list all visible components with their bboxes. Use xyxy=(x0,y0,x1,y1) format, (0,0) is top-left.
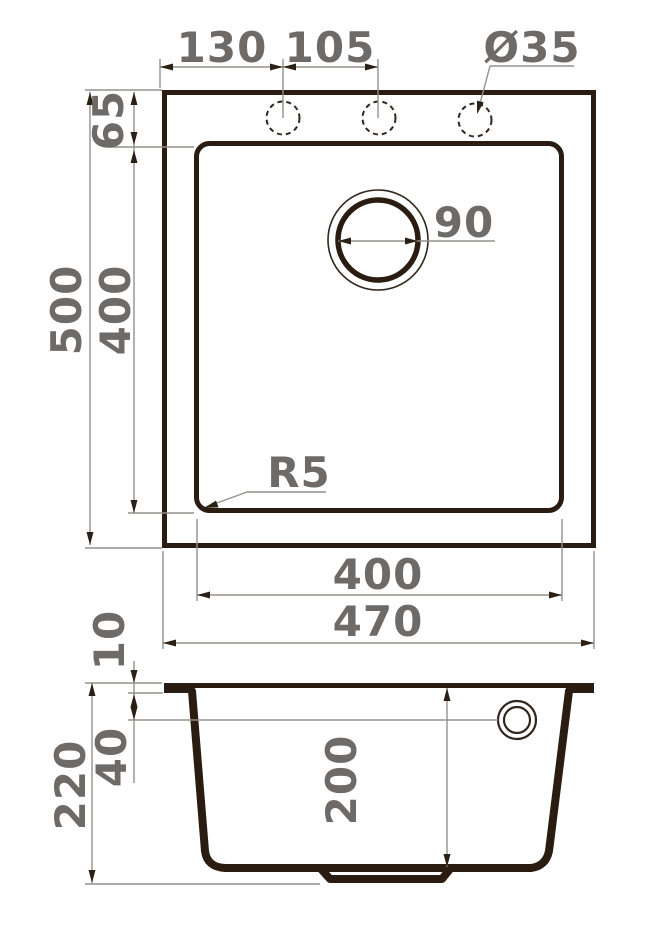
dim-label-105: 105 xyxy=(285,23,376,72)
dim-label-400-vertical: 400 xyxy=(91,265,140,356)
dim-label-10: 10 xyxy=(85,610,134,670)
sink-outer-outline xyxy=(165,93,594,546)
section-view: 10 40 220 200 xyxy=(46,610,594,884)
overflow-hole-inner xyxy=(504,707,530,733)
dim-label-130: 130 xyxy=(177,23,268,72)
section-dim-arrows xyxy=(89,670,451,883)
section-extension-lines xyxy=(85,661,498,884)
section-rim xyxy=(164,683,594,693)
dim-label-400-bottom: 400 xyxy=(333,550,424,599)
dim-label-65: 65 xyxy=(84,90,133,150)
dim-label-200: 200 xyxy=(317,735,366,826)
drawing-canvas: 130 105 Ø35 500 400 65 xyxy=(0,0,653,927)
dim-label-500: 500 xyxy=(42,265,91,356)
dim-label-220: 220 xyxy=(46,740,95,831)
top-view: 130 105 Ø35 500 400 65 xyxy=(42,23,594,649)
faucet-hole-right xyxy=(459,104,492,137)
dim-label-diameter-35: Ø35 xyxy=(483,23,580,72)
dim-label-470: 470 xyxy=(333,597,424,646)
dim-label-r5: R5 xyxy=(267,448,331,497)
dim-label-90: 90 xyxy=(434,198,494,247)
faucet-hole-center xyxy=(363,102,396,135)
sink-technical-drawing: 130 105 Ø35 500 400 65 xyxy=(0,0,653,927)
section-bowl-profile xyxy=(192,691,569,868)
